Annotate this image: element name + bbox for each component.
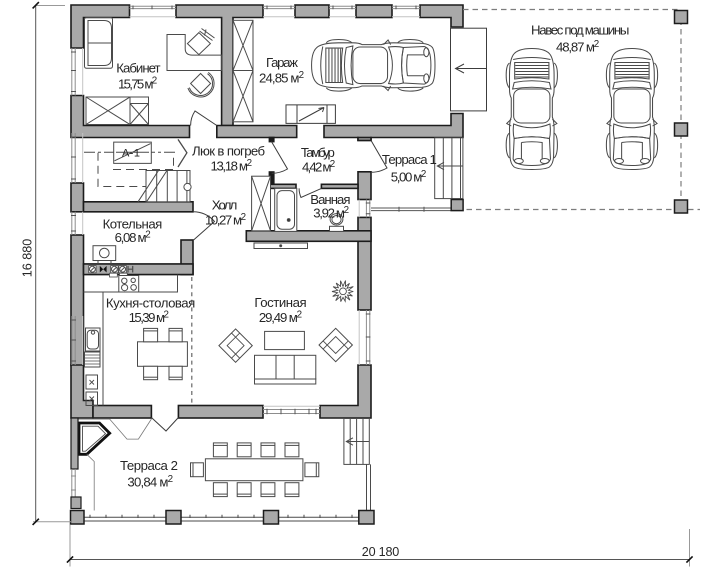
svg-text:6,08 м2: 6,08 м2 <box>115 229 151 245</box>
svg-text:30,84 м2: 30,84 м2 <box>127 474 173 490</box>
svg-text:20 180: 20 180 <box>362 545 400 559</box>
svg-text:16 880: 16 880 <box>21 239 35 278</box>
svg-text:Гостиная: Гостиная <box>254 295 306 310</box>
svg-text:Тамбур: Тамбур <box>301 145 335 160</box>
svg-text:5,00 м2: 5,00 м2 <box>391 169 427 185</box>
svg-text:Люк в погреб: Люк в погреб <box>192 144 265 159</box>
svg-text:4,42 м2: 4,42 м2 <box>302 159 335 175</box>
svg-text:24,85 м2: 24,85 м2 <box>259 70 304 86</box>
svg-text:Холл: Холл <box>212 198 238 213</box>
svg-text:Гараж: Гараж <box>266 55 298 70</box>
svg-text:Кабинет: Кабинет <box>116 61 160 76</box>
svg-text:10,27 м2: 10,27 м2 <box>205 212 246 228</box>
svg-text:Терраса 1: Терраса 1 <box>382 152 437 167</box>
svg-text:Кухня-столовая: Кухня-столовая <box>106 296 195 311</box>
svg-text:15,39 м2: 15,39 м2 <box>129 309 169 325</box>
svg-text:29,49 м2: 29,49 м2 <box>259 309 302 325</box>
svg-text:15,75 м2: 15,75 м2 <box>118 76 157 92</box>
svg-text:13,18 м2: 13,18 м2 <box>211 158 253 174</box>
svg-text:Терраса 2: Терраса 2 <box>120 458 178 473</box>
svg-text:Навес под машины: Навес под машины <box>531 22 629 37</box>
svg-text:48,87 м2: 48,87 м2 <box>556 39 599 55</box>
svg-text:А-1: А-1 <box>122 148 140 160</box>
svg-text:3,92 м2: 3,92 м2 <box>313 205 349 221</box>
